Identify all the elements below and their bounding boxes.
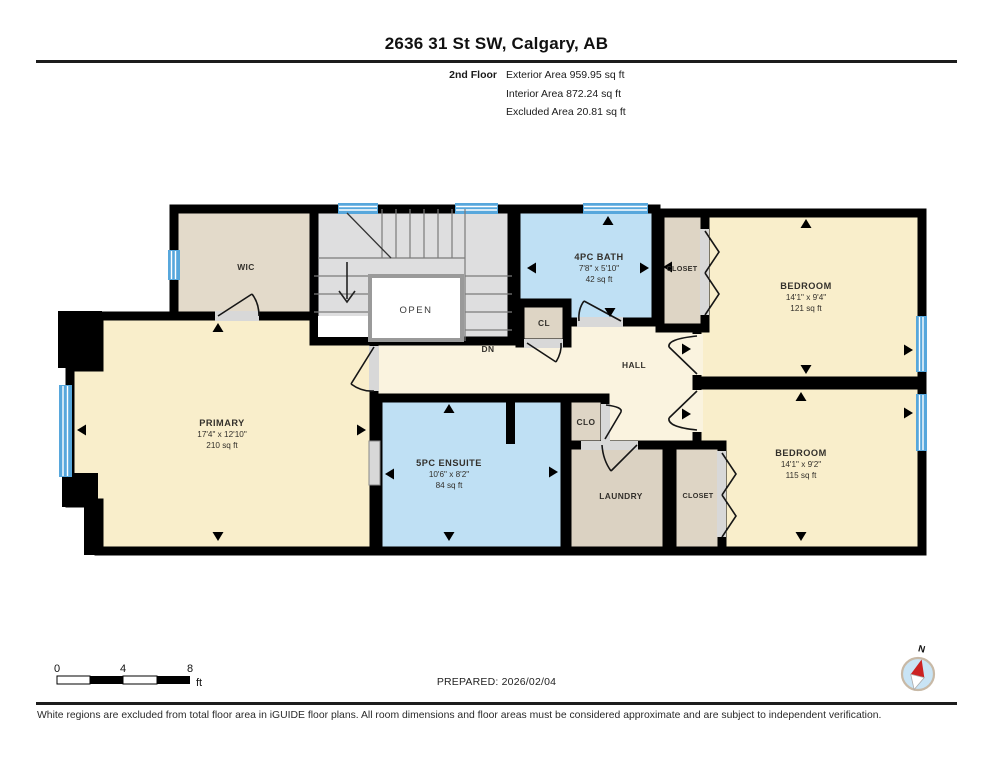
window-wic — [168, 250, 180, 280]
wic-label: WIC — [237, 262, 254, 272]
ensuite-area: 84 sq ft — [436, 481, 464, 490]
window-bedroom-top — [916, 316, 927, 372]
window-bath — [583, 203, 648, 214]
bath-dims: 7'8" x 5'10" — [579, 264, 619, 273]
window-stairs-2 — [455, 203, 498, 214]
closet-bottom-label: CLOSET — [683, 491, 714, 500]
bedroom-top-label: BEDROOM — [780, 281, 831, 291]
window-primary — [59, 385, 72, 477]
hall-label: HALL — [622, 360, 646, 370]
window-stairs-1 — [338, 203, 378, 214]
closet-top-label: CLOSET — [667, 264, 698, 273]
clo-label: CLO — [577, 417, 596, 427]
window-bedroom-bottom — [916, 394, 927, 451]
compass-north-label: N — [917, 643, 926, 655]
primary-label: PRIMARY — [199, 418, 245, 428]
disclaimer-text: White regions are excluded from total fl… — [37, 710, 973, 721]
floor-plan: WIC OPEN DN 4PC BATH 7'8" x 5'10" 42 sq … — [0, 0, 993, 768]
bedroom-bottom-dims: 14'1" x 9'2" — [781, 460, 821, 469]
svg-text:4: 4 — [120, 663, 126, 675]
ensuite-partition-wall — [506, 394, 515, 444]
bedroom-bottom-label: BEDROOM — [775, 448, 826, 458]
primary-dims: 17'4" x 12'10" — [197, 430, 247, 439]
ensuite-pocket-door — [369, 441, 380, 485]
primary-area: 210 sq ft — [206, 441, 238, 450]
bedroom-top-area: 121 sq ft — [790, 304, 822, 313]
open-label: OPEN — [400, 305, 433, 316]
bath-area: 42 sq ft — [586, 275, 614, 284]
bedroom-bottom-area: 115 sq ft — [786, 471, 818, 480]
svg-text:0: 0 — [54, 663, 60, 675]
cl-label: CL — [538, 318, 550, 328]
room-ensuite — [378, 398, 565, 551]
dn-label: DN — [482, 344, 495, 354]
laundry-label: LAUNDRY — [599, 491, 642, 501]
footer-divider — [36, 702, 957, 705]
ensuite-label: 5PC ENSUITE — [416, 458, 482, 468]
bath-label: 4PC BATH — [574, 252, 623, 262]
svg-text:8: 8 — [187, 663, 193, 675]
bedroom-top-dims: 14'1" x 9'4" — [786, 293, 826, 302]
prepared-date: PREPARED: 2026/02/04 — [0, 676, 993, 688]
ensuite-dims: 10'6" x 8'2" — [429, 470, 469, 479]
